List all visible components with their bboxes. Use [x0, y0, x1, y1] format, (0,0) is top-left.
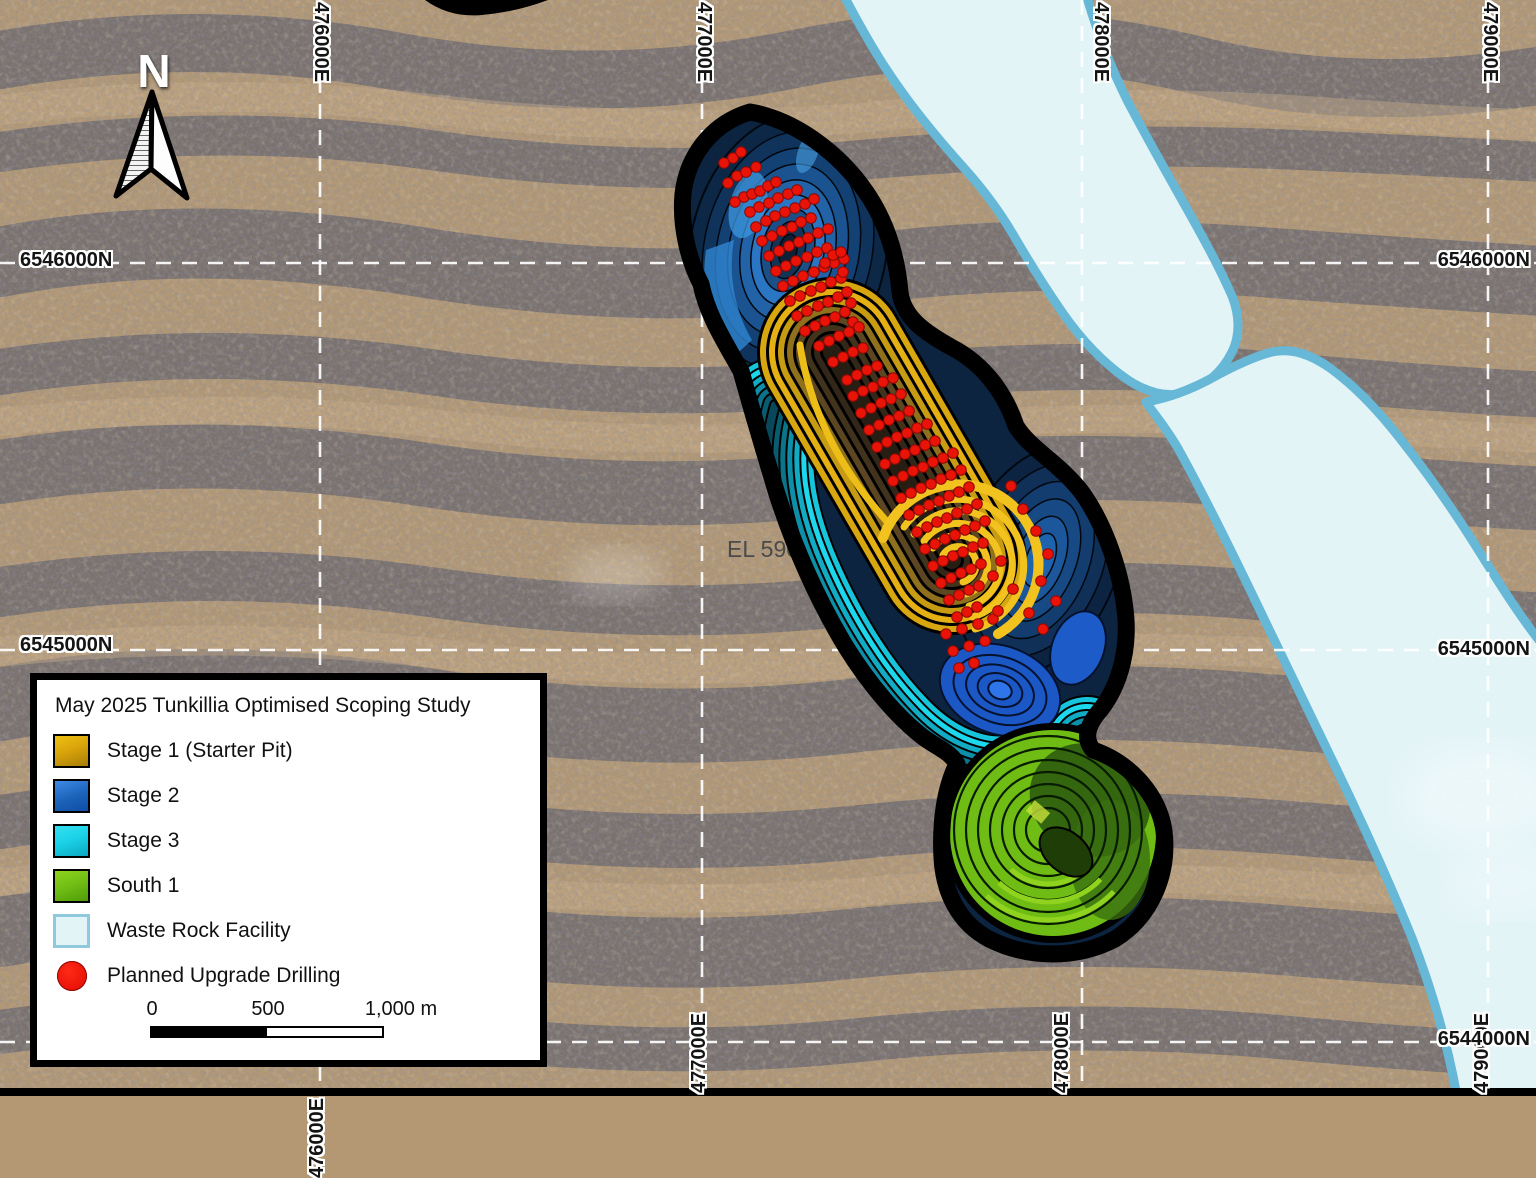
legend-panel: May 2025 Tunkillia Optimised Scoping Stu… [30, 673, 547, 1067]
drill-point [916, 483, 927, 494]
drill-point [830, 312, 841, 323]
drill-point [795, 291, 806, 302]
grid-coordinate-label: 6544000N [1438, 1028, 1530, 1050]
drill-point [969, 658, 980, 669]
drill-point [771, 266, 782, 277]
drill-point [928, 561, 939, 572]
drill-point [902, 428, 913, 439]
legend-item-stage1: Stage 1 (Starter Pit) [53, 728, 540, 773]
drill-point [774, 246, 785, 257]
drill-point [914, 505, 925, 516]
drill-point-swatch-icon [57, 961, 87, 991]
legend-item-stage3: Stage 3 [53, 818, 540, 863]
drill-point [996, 556, 1007, 567]
drill-point [922, 522, 933, 533]
drill-point [941, 629, 952, 640]
drill-point [809, 194, 820, 205]
drill-point [940, 534, 951, 545]
drill-point [828, 357, 839, 368]
drill-point [958, 547, 969, 558]
drill-point [993, 606, 1004, 617]
drill-point [950, 530, 961, 541]
drill-point [751, 162, 762, 173]
drill-point [888, 476, 899, 487]
drill-point [904, 406, 915, 417]
drill-point [806, 213, 817, 224]
drill-point [1006, 481, 1017, 492]
drill-point [972, 499, 983, 510]
drill-point [938, 556, 949, 567]
grid-coordinate-label: 477000E [693, 2, 715, 82]
legend-item-label: Stage 2 [107, 784, 179, 808]
legend-item-label: Planned Upgrade Drilling [107, 964, 340, 988]
drill-point [886, 394, 897, 405]
drill-point [848, 391, 859, 402]
drill-point [810, 321, 821, 332]
drill-point [836, 247, 847, 258]
drill-point [898, 471, 909, 482]
scale-tick-500: 500 [251, 998, 284, 1021]
drill-point [888, 373, 899, 384]
drill-point [980, 516, 991, 527]
grid-coordinate-label: 476000E [306, 1098, 328, 1178]
grid-coordinate-label: 476000E [310, 2, 332, 82]
drill-point [922, 419, 933, 430]
drill-point [767, 231, 778, 242]
drill-point [890, 454, 901, 465]
drill-point [954, 663, 965, 674]
drill-point [798, 271, 809, 282]
map-canvas: EL 590 [0, 0, 1536, 1096]
drill-point [924, 500, 935, 511]
drill-point [944, 595, 955, 606]
drill-point [882, 437, 893, 448]
drill-point [948, 448, 959, 459]
drill-point [1018, 504, 1029, 515]
grid-coordinate-label: 478000E [1090, 2, 1112, 82]
legend-item-waste: Waste Rock Facility [53, 908, 540, 953]
legend-item-label: Stage 3 [107, 829, 179, 853]
drill-point [936, 474, 947, 485]
grid-coordinate-label: 6546000N [20, 249, 112, 271]
drill-point [954, 487, 965, 498]
grid-coordinate-label: 478000E [1051, 1013, 1073, 1093]
grid-coordinate-label: 6546000N [1438, 249, 1530, 271]
scale-tick-0: 0 [146, 998, 157, 1021]
drill-point [792, 185, 803, 196]
drill-point [838, 352, 849, 363]
drill-point [896, 493, 907, 504]
drill-point [848, 347, 859, 358]
legend-item-label: Waste Rock Facility [107, 919, 291, 943]
drill-point [920, 440, 931, 451]
drill-point [966, 564, 977, 575]
drill-point [838, 267, 849, 278]
drill-point [930, 436, 941, 447]
drill-point [773, 193, 784, 204]
drill-point [802, 252, 813, 263]
drill-point [868, 382, 879, 393]
drill-point [906, 488, 917, 499]
drill-point [842, 375, 853, 386]
drill-point [741, 167, 752, 178]
drill-point [973, 619, 984, 630]
map-page: { "map": { "el_label": "EL 590", "north_… [0, 0, 1536, 1096]
drill-point [785, 296, 796, 307]
drill-point [802, 306, 813, 317]
drill-point [938, 453, 949, 464]
drill-point [944, 491, 955, 502]
drill-point [942, 513, 953, 524]
drill-point [956, 568, 967, 579]
drill-point [932, 517, 943, 528]
stage1-swatch-icon [53, 734, 90, 768]
drill-point [964, 641, 975, 652]
drill-point [826, 277, 837, 288]
legend-content: May 2025 Tunkillia Optimised Scoping Stu… [37, 680, 540, 1060]
drill-point [858, 386, 869, 397]
drill-point [1038, 624, 1049, 635]
drill-point [842, 287, 853, 298]
grid-coordinate-label: 479000E [1479, 2, 1501, 82]
drill-point [880, 459, 891, 470]
waste-rock-swatch-icon [53, 914, 90, 948]
stage2-swatch-icon [53, 779, 90, 813]
drill-point [800, 326, 811, 337]
legend-item-label: Stage 1 (Starter Pit) [107, 739, 293, 763]
north-arrow-icon [108, 88, 200, 204]
drill-point [936, 578, 947, 589]
drill-point [778, 281, 789, 292]
drill-point [926, 479, 937, 490]
drill-point [770, 211, 781, 222]
drill-point [820, 316, 831, 327]
drill-point [894, 411, 905, 422]
drill-point [771, 177, 782, 188]
drill-point [956, 465, 967, 476]
drill-point [972, 602, 983, 613]
drill-point [1051, 596, 1062, 607]
drill-point [974, 581, 985, 592]
drill-point [784, 241, 795, 252]
drill-point [864, 425, 875, 436]
drill-point [930, 539, 941, 550]
drill-point [788, 276, 799, 287]
drill-point [854, 322, 865, 333]
drill-point [896, 389, 907, 400]
south1-swatch-icon [53, 869, 90, 903]
drill-point [777, 226, 788, 237]
drill-point [780, 207, 791, 218]
drill-point [874, 420, 885, 431]
drill-point [792, 311, 803, 322]
drill-point [866, 403, 877, 414]
drill-point [934, 496, 945, 507]
drill-point [816, 282, 827, 293]
drill-point [970, 521, 981, 532]
legend-item-label: South 1 [107, 874, 179, 898]
scale-bar [150, 1026, 384, 1038]
grid-coordinate-label: 479000E [1471, 1013, 1493, 1093]
drill-point [823, 297, 834, 308]
drill-point [862, 365, 873, 376]
drill-point [960, 525, 971, 536]
drill-point [723, 178, 734, 189]
drill-point [751, 222, 762, 233]
legend-title: May 2025 Tunkillia Optimised Scoping Stu… [55, 694, 540, 718]
drill-point [980, 636, 991, 647]
drill-point [964, 482, 975, 493]
drill-point [757, 236, 768, 247]
drill-point [846, 298, 857, 309]
drill-point [1036, 576, 1047, 587]
drill-point [1043, 549, 1054, 560]
drill-point [948, 646, 959, 657]
north-arrow: N [108, 52, 200, 204]
drill-point [858, 343, 869, 354]
drill-point [952, 508, 963, 519]
drill-point [968, 542, 979, 553]
drill-point [824, 336, 835, 347]
drill-point [796, 217, 807, 228]
drill-point [856, 408, 867, 419]
drill-point [820, 258, 831, 269]
drill-point [812, 247, 823, 258]
drill-point [813, 301, 824, 312]
drill-point [781, 261, 792, 272]
drill-point [872, 361, 883, 372]
legend-item-drilling: Planned Upgrade Drilling [53, 953, 540, 998]
drill-point [803, 233, 814, 244]
drill-point [1024, 608, 1035, 619]
drill-point [834, 331, 845, 342]
legend-item-stage2: Stage 2 [53, 773, 540, 818]
drill-point [1008, 584, 1019, 595]
drill-point [946, 470, 957, 481]
drill-point [918, 462, 929, 473]
drill-point [910, 445, 921, 456]
grid-coordinate-label: 477000E [688, 1013, 710, 1093]
drill-point [844, 327, 855, 338]
drill-point [876, 398, 887, 409]
drill-point [813, 228, 824, 239]
drill-point [900, 449, 911, 460]
drill-point [908, 466, 919, 477]
drill-point [791, 256, 802, 267]
drill-point [957, 624, 968, 635]
drill-point [912, 423, 923, 434]
drill-point [946, 573, 957, 584]
drill-point [809, 267, 820, 278]
drill-point [948, 551, 959, 562]
drill-point [790, 203, 801, 214]
drill-point [814, 341, 825, 352]
drill-point [912, 527, 923, 538]
drill-point [928, 457, 939, 468]
legend-item-south1: South 1 [53, 863, 540, 908]
drill-point [962, 504, 973, 515]
drill-point [823, 224, 834, 235]
drill-point [976, 559, 987, 570]
drill-point [904, 510, 915, 521]
grid-coordinate-label: 6545000N [20, 634, 112, 656]
drill-point [872, 442, 883, 453]
drill-point [764, 251, 775, 262]
drill-point [806, 286, 817, 297]
drill-point [892, 432, 903, 443]
scale-tick-1000: 1,000 m [365, 998, 437, 1021]
stage3-swatch-icon [53, 824, 90, 858]
drill-point [736, 147, 747, 158]
drill-point [962, 607, 973, 618]
bottom-edge-bar [0, 1088, 1536, 1096]
drill-point [954, 590, 965, 601]
grid-coordinate-label: 6545000N [1438, 638, 1530, 660]
drill-point [964, 585, 975, 596]
drill-point [952, 612, 963, 623]
drill-point [920, 544, 931, 555]
drill-point [1031, 526, 1042, 537]
drill-point [988, 571, 999, 582]
drill-point [878, 377, 889, 388]
drill-point [852, 370, 863, 381]
drill-point [754, 202, 765, 213]
drill-point [978, 538, 989, 549]
drill-point [884, 415, 895, 426]
